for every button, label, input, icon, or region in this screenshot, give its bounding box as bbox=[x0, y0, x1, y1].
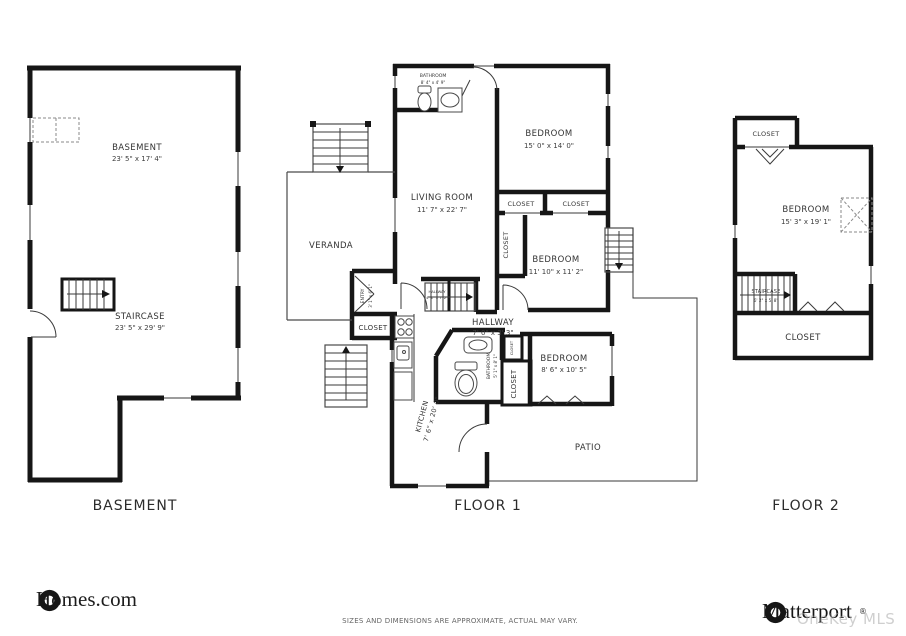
f2-staircase-label: STAIRCASE bbox=[751, 289, 780, 295]
f1-bedroom2-dims: 11' 10" x 11' 2" bbox=[529, 268, 584, 276]
f1-hallway-dims: 7' 0" x 3' 3" bbox=[472, 329, 513, 337]
f1-closet-b-label: CLOSET bbox=[562, 200, 589, 208]
f1-bathroom-mid-dims: 5' 1" x 8' 1" bbox=[493, 354, 498, 378]
floor2-plan: CLOSET BEDROOM 15' 3" x 19' 1" STAIRCASE… bbox=[735, 118, 873, 514]
basement-door-arc bbox=[30, 311, 56, 337]
homes-logo-icon bbox=[36, 587, 63, 614]
f1-bedroom3-dims: 8' 6" x 10' 5" bbox=[541, 366, 587, 374]
basement-staircase-icon bbox=[62, 279, 114, 310]
f1-inner-stairs-label: HALLWAY bbox=[429, 290, 447, 294]
floor2-walls bbox=[735, 118, 873, 360]
f1-closet-right-label: CLOSET bbox=[510, 369, 518, 398]
f1-bedroom2-label: BEDROOM bbox=[532, 255, 579, 265]
f1-patio-label: PATIO bbox=[575, 443, 601, 453]
basement-caption: BASEMENT bbox=[93, 498, 178, 514]
f1-closet-left-label: CLOSET bbox=[502, 231, 510, 258]
disclaimer-text: SIZES AND DIMENSIONS ARE APPROXIMATE, AC… bbox=[330, 617, 590, 625]
f1-living-room-label: LIVING ROOM bbox=[411, 193, 473, 203]
floor1-caption: FLOOR 1 bbox=[454, 498, 521, 514]
f1-bathroom-top-dims: 8' 4" x 4' 9" bbox=[421, 80, 446, 85]
f2-closet-bottom-label: CLOSET bbox=[785, 333, 821, 343]
f2-staircase-dims: 6' 2" x 5' 8" bbox=[754, 298, 779, 303]
f1-bedroom3-label: BEDROOM bbox=[540, 354, 587, 364]
f1-bedroom1-label: BEDROOM bbox=[525, 129, 572, 139]
f1-closet-tiny-label: CLOSET bbox=[510, 340, 514, 355]
f1-inner-stairs-dims: 4' 1" x 7' 2" bbox=[426, 296, 448, 300]
basement-room-label: BASEMENT bbox=[112, 143, 162, 153]
f1-bathroom-mid-label: BATHROOM bbox=[486, 353, 492, 380]
exterior-staircase-right-icon bbox=[605, 228, 633, 272]
f1-kitchen-label-group: KITCHEN 7' 6" x 20' 0" bbox=[412, 393, 441, 443]
homes-logo: Homes.com bbox=[36, 587, 137, 612]
f1-entry-label: ENTRY bbox=[360, 288, 366, 303]
f1-closet-entry-label: CLOSET bbox=[359, 324, 388, 332]
basement-staircase-label: STAIRCASE bbox=[115, 312, 165, 322]
f1-veranda-label: VERANDA bbox=[309, 241, 353, 251]
floorplan-svg: BASEMENT 23' 5" x 17' 4" STAIRCASE 23' 5… bbox=[0, 0, 906, 636]
basement-room-dims: 23' 5" x 17' 4" bbox=[112, 155, 162, 163]
exterior-staircase-left-icon bbox=[325, 345, 367, 407]
f1-entry-dims: 3' 1" x 6' 1" bbox=[368, 284, 373, 308]
onekey-mls-watermark: OneKey MLS bbox=[797, 610, 895, 628]
f2-bedroom-label: BEDROOM bbox=[782, 205, 829, 215]
matterport-logo-icon bbox=[762, 599, 789, 626]
basement-walls bbox=[27, 66, 241, 482]
basement-plan: BASEMENT 23' 5" x 17' 4" STAIRCASE 23' 5… bbox=[27, 66, 241, 514]
veranda-staircase-icon bbox=[310, 121, 371, 173]
basement-staircase-dims: 23' 5" x 29' 9" bbox=[115, 324, 165, 332]
f1-closet-a-label: CLOSET bbox=[507, 200, 534, 208]
floor1-plan: BATHROOM 8' 4" x 4' 9" BEDROOM 15' 0" x … bbox=[287, 64, 697, 514]
bathroom-top-fixtures bbox=[418, 86, 462, 112]
f2-closet-top-label: CLOSET bbox=[752, 130, 779, 138]
f1-bedroom1-dims: 15' 0" x 14' 0" bbox=[524, 142, 574, 150]
floor2-caption: FLOOR 2 bbox=[772, 498, 839, 514]
f1-bathroom-top-label: BATHROOM bbox=[420, 73, 447, 79]
floorplan-canvas: BASEMENT 23' 5" x 17' 4" STAIRCASE 23' 5… bbox=[0, 0, 906, 636]
f2-bedroom-dims: 15' 3" x 19' 1" bbox=[781, 218, 831, 226]
floor2-skylight-dashed bbox=[841, 198, 872, 232]
kitchen-appliances bbox=[394, 314, 414, 402]
f1-living-room-dims: 11' 7" x 22' 7" bbox=[417, 206, 467, 214]
basement-utility-dashed-box bbox=[33, 118, 79, 142]
f1-hallway-label: HALLWAY bbox=[472, 318, 514, 328]
